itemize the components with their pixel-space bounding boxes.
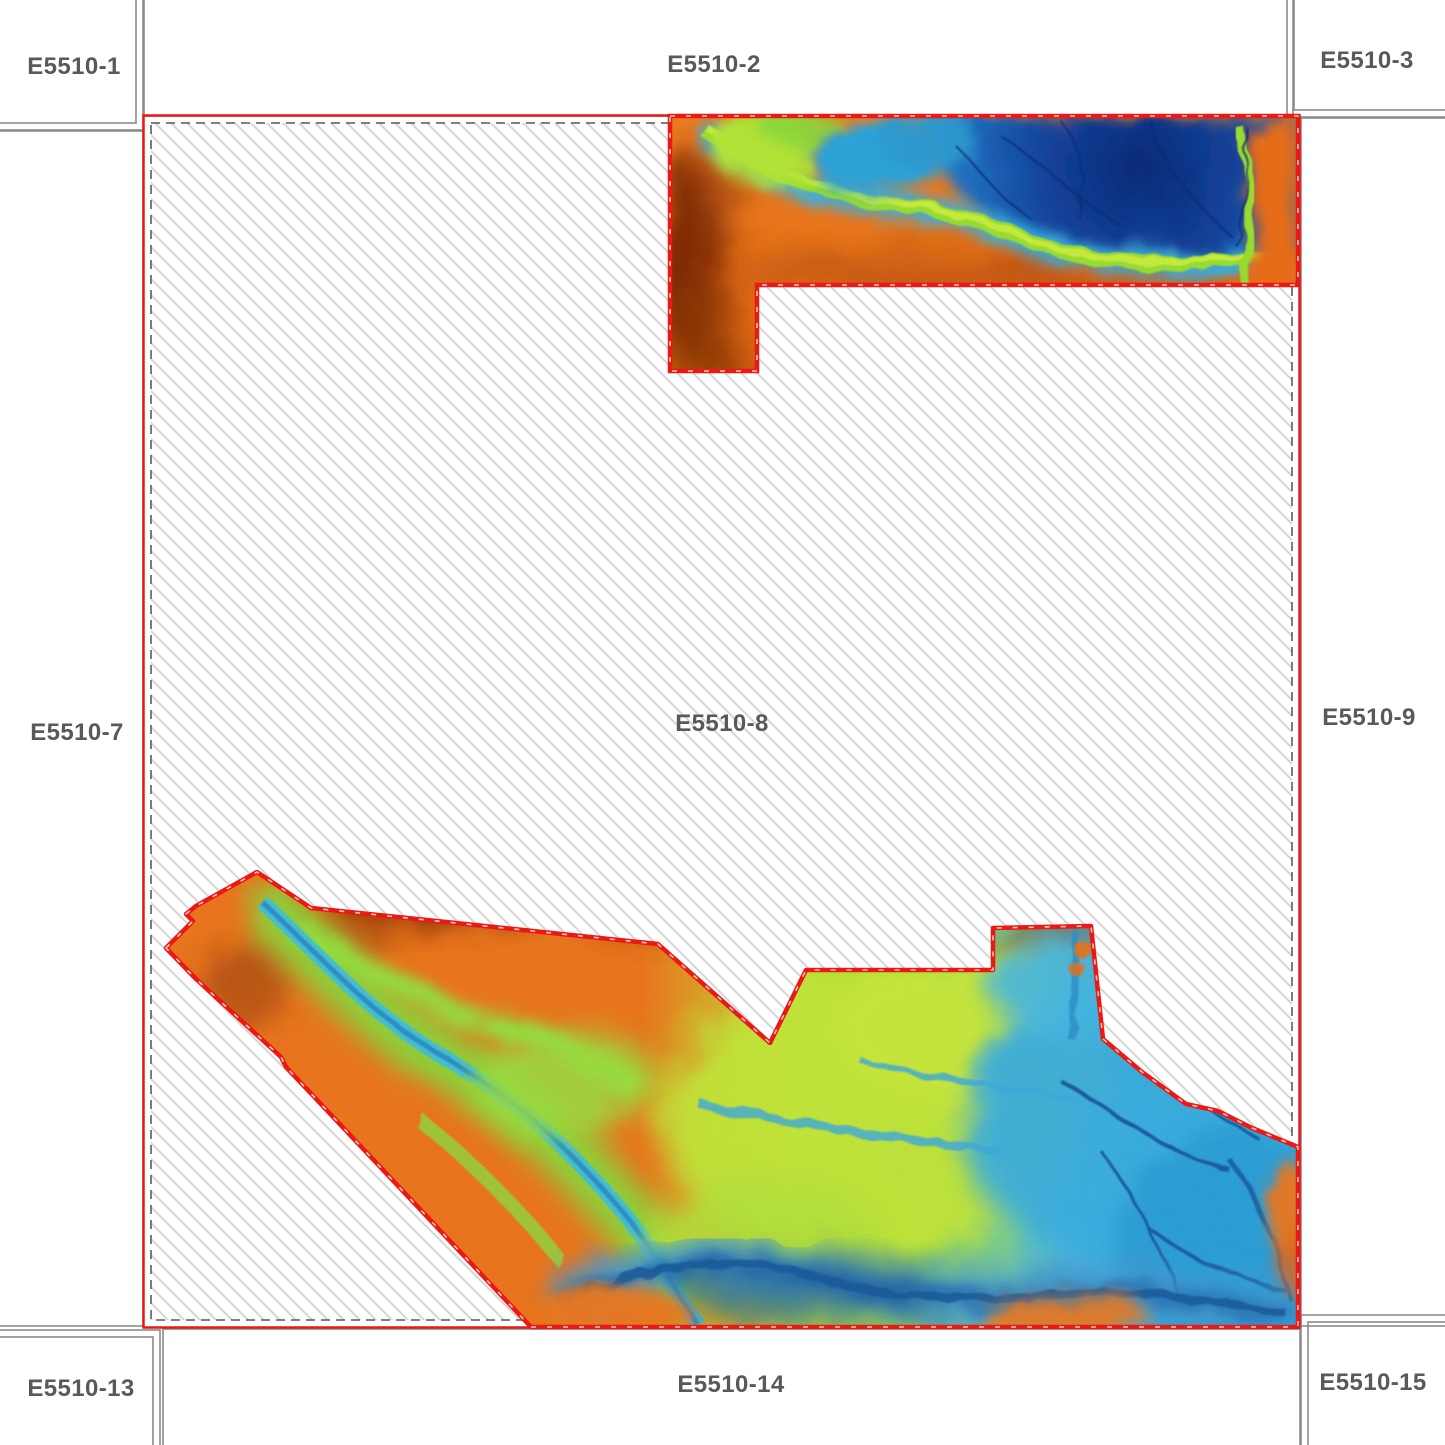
sheet-label-e5510-8: E5510-8 <box>675 710 769 738</box>
sheet-label-e5510-7: E5510-7 <box>30 719 124 747</box>
sheet-label-e5510-15: E5510-15 <box>1319 1369 1426 1397</box>
sheet-label-e5510-13: E5510-13 <box>27 1375 134 1403</box>
sheet-label-e5510-9: E5510-9 <box>1322 704 1416 732</box>
sheet-label-e5510-14: E5510-14 <box>677 1371 784 1399</box>
sheet-label-e5510-3: E5510-3 <box>1320 47 1414 75</box>
sheet-label-e5510-2: E5510-2 <box>667 51 761 79</box>
map-canvas[interactable]: E5510-1 E5510-2 E5510-3 E5510-7 E5510-8 … <box>0 0 1445 1445</box>
sheet-label-e5510-1: E5510-1 <box>27 53 121 81</box>
